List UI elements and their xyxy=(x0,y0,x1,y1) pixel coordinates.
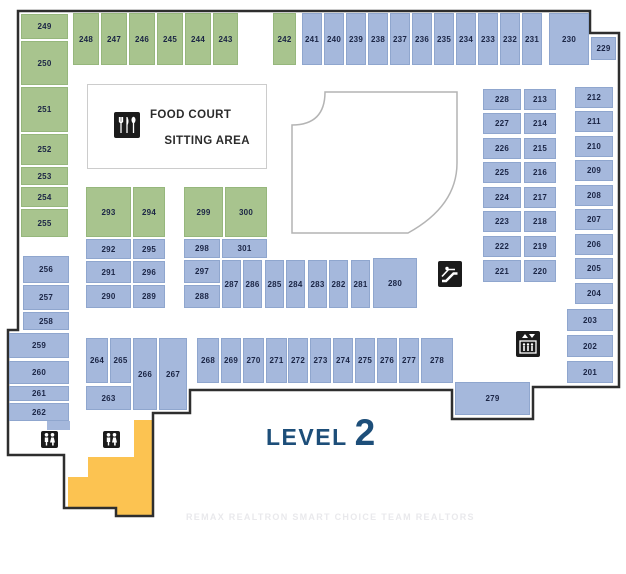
unit-233: 233 xyxy=(478,13,498,65)
unit-286: 286 xyxy=(243,260,262,308)
unit-223: 223 xyxy=(483,211,521,232)
unit-230: 230 xyxy=(549,13,589,65)
unit-217: 217 xyxy=(524,187,556,208)
unit-245: 245 xyxy=(157,13,183,65)
level-title: LEVEL 2 xyxy=(266,412,416,454)
unit-273: 273 xyxy=(310,338,331,383)
unit-284: 284 xyxy=(286,260,305,308)
unit-265: 265 xyxy=(110,338,131,383)
unit-250: 250 xyxy=(21,41,68,85)
unit-206: 206 xyxy=(575,234,613,255)
unit-251: 251 xyxy=(21,87,68,132)
unit-229: 229 xyxy=(591,37,616,60)
unit-232: 232 xyxy=(500,13,520,65)
unit-215: 215 xyxy=(524,138,556,159)
unit-254: 254 xyxy=(21,187,68,207)
unit-203: 203 xyxy=(567,309,613,331)
unit-262: 262 xyxy=(9,403,69,421)
unit-213: 213 xyxy=(524,89,556,110)
unit-222: 222 xyxy=(483,236,521,257)
unit-295: 295 xyxy=(133,239,165,259)
unit-279: 279 xyxy=(455,382,530,415)
escalator-icon xyxy=(438,261,462,287)
unit-261: 261 xyxy=(9,386,69,401)
open-area-shape xyxy=(292,92,457,233)
unit-248: 248 xyxy=(73,13,99,65)
unit-205: 205 xyxy=(575,258,613,279)
unit-300: 300 xyxy=(225,187,267,237)
unit-293: 293 xyxy=(86,187,131,237)
unit-209: 209 xyxy=(575,160,613,181)
unit-281: 281 xyxy=(351,260,370,308)
unit-270: 270 xyxy=(243,338,264,383)
unit-242: 242 xyxy=(273,13,296,65)
unit-283: 283 xyxy=(308,260,327,308)
unit-263: 263 xyxy=(86,386,131,410)
unit-297: 297 xyxy=(184,260,220,283)
unit-269: 269 xyxy=(221,338,241,383)
unit-282: 282 xyxy=(329,260,348,308)
unit-260: 260 xyxy=(9,361,69,384)
unit-268: 268 xyxy=(197,338,219,383)
unit-257: 257 xyxy=(23,285,69,310)
unit-290: 290 xyxy=(86,285,131,308)
unit-240: 240 xyxy=(324,13,344,65)
unit-234: 234 xyxy=(456,13,476,65)
unit-237: 237 xyxy=(390,13,410,65)
unit-225: 225 xyxy=(483,162,521,183)
unit-262-extension xyxy=(47,421,70,430)
unit-288: 288 xyxy=(184,285,220,308)
unit-287: 287 xyxy=(222,260,241,308)
unit-218: 218 xyxy=(524,211,556,232)
unit-289: 289 xyxy=(133,285,165,308)
restroom-icon-left xyxy=(41,431,58,448)
unit-220: 220 xyxy=(524,260,556,282)
elevator-icon xyxy=(516,331,540,357)
unit-285: 285 xyxy=(265,260,284,308)
food-court-label: FOOD COURT SITTING AREA xyxy=(150,109,250,148)
unit-267: 267 xyxy=(159,338,187,410)
unit-204: 204 xyxy=(575,283,613,304)
unit-208: 208 xyxy=(575,185,613,206)
unit-301: 301 xyxy=(222,239,267,258)
unit-221: 221 xyxy=(483,260,521,282)
unit-291: 291 xyxy=(86,261,131,283)
food-court-line1: FOOD COURT xyxy=(150,109,231,121)
unit-274: 274 xyxy=(333,338,353,383)
unit-272: 272 xyxy=(288,338,308,383)
unit-201: 201 xyxy=(567,361,613,383)
unit-292: 292 xyxy=(86,239,131,259)
unit-239: 239 xyxy=(346,13,366,65)
unit-256: 256 xyxy=(23,256,69,283)
level-number: 2 xyxy=(355,412,376,454)
unit-247: 247 xyxy=(101,13,127,65)
unit-226: 226 xyxy=(483,138,521,159)
unit-236: 236 xyxy=(412,13,432,65)
unit-249: 249 xyxy=(21,14,68,39)
unit-277: 277 xyxy=(399,338,419,383)
unit-253: 253 xyxy=(21,167,68,185)
unit-202: 202 xyxy=(567,335,613,357)
unit-212: 212 xyxy=(575,87,613,108)
restroom-icon-right xyxy=(103,431,120,448)
unit-296: 296 xyxy=(133,261,165,283)
unit-276: 276 xyxy=(377,338,397,383)
unit-255: 255 xyxy=(21,209,68,237)
unit-210: 210 xyxy=(575,136,613,157)
level-label: LEVEL xyxy=(266,424,348,451)
unit-241: 241 xyxy=(302,13,322,65)
unit-231: 231 xyxy=(522,13,542,65)
mall-floor-plan: FOOD COURT SITTING AREA xyxy=(0,0,626,574)
unit-219: 219 xyxy=(524,236,556,257)
unit-252: 252 xyxy=(21,134,68,165)
unit-299: 299 xyxy=(184,187,223,237)
unit-298: 298 xyxy=(184,239,220,258)
unit-259: 259 xyxy=(9,333,69,358)
unit-207: 207 xyxy=(575,209,613,230)
watermark: REMAX REALTRON SMART CHOICE TEAM REALTOR… xyxy=(186,512,475,522)
unit-227: 227 xyxy=(483,113,521,134)
unit-244: 244 xyxy=(185,13,211,65)
unit-264: 264 xyxy=(86,338,108,383)
unit-235: 235 xyxy=(434,13,454,65)
unit-258: 258 xyxy=(23,312,69,330)
unit-216: 216 xyxy=(524,162,556,183)
unit-246: 246 xyxy=(129,13,155,65)
unit-271: 271 xyxy=(266,338,287,383)
unit-294: 294 xyxy=(133,187,165,237)
unit-224: 224 xyxy=(483,187,521,208)
utensils-icon xyxy=(114,112,140,138)
unit-238: 238 xyxy=(368,13,388,65)
unit-228: 228 xyxy=(483,89,521,110)
unit-266: 266 xyxy=(133,338,157,410)
unit-214: 214 xyxy=(524,113,556,134)
unit-243: 243 xyxy=(213,13,238,65)
food-court-line2: SITTING AREA xyxy=(164,135,250,147)
unit-275: 275 xyxy=(355,338,375,383)
unit-211: 211 xyxy=(575,111,613,132)
unit-278: 278 xyxy=(421,338,453,383)
unit-280: 280 xyxy=(373,258,417,308)
